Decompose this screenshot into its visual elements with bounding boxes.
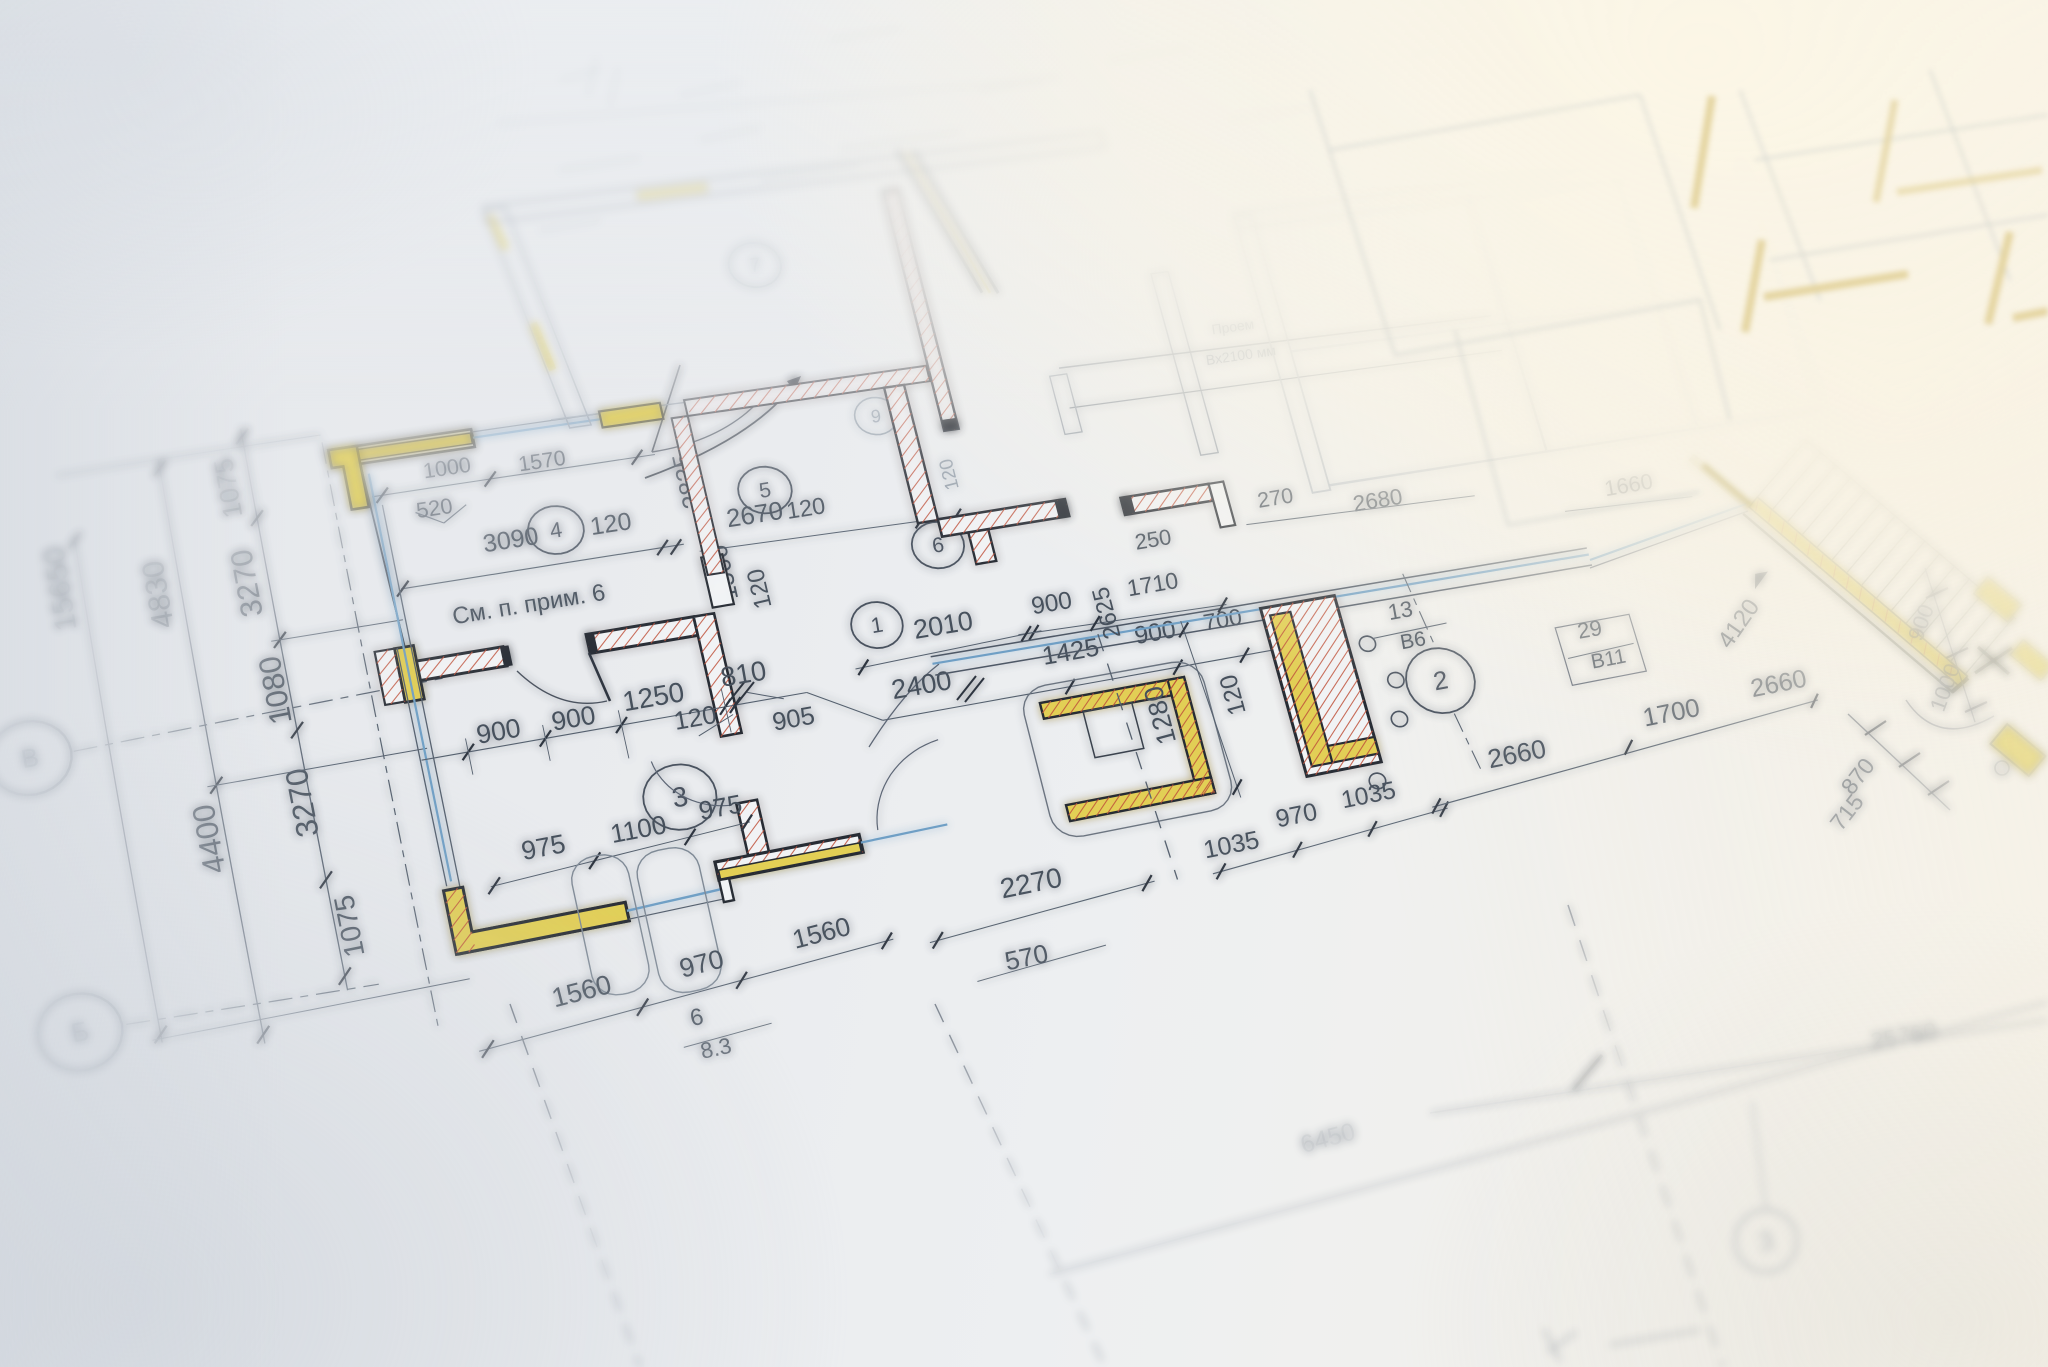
svg-text:3270: 3270 [224,547,270,620]
svg-text:29: 29 [1575,615,1604,644]
svg-text:900: 900 [549,700,598,737]
svg-text:3: 3 [670,780,691,813]
svg-text:В: В [19,742,41,775]
svg-text:570: 570 [1002,938,1051,976]
svg-text:970: 970 [676,943,727,983]
svg-text:905: 905 [770,702,817,737]
svg-text:120: 120 [742,566,777,611]
svg-text:2010: 2010 [911,605,975,645]
svg-text:4830: 4830 [135,558,181,631]
svg-text:1080: 1080 [252,653,299,727]
svg-text:250: 250 [1133,524,1173,555]
svg-text:120: 120 [588,508,633,541]
svg-text:1035: 1035 [1339,777,1398,814]
svg-text:900: 900 [1132,615,1178,650]
svg-text:См. п. прим. 6: См. п. прим. 6 [451,580,608,630]
svg-text:520: 520 [414,493,454,523]
svg-text:6450: 6450 [1297,1118,1358,1159]
svg-text:1035: 1035 [1201,826,1261,865]
svg-text:120: 120 [1215,671,1252,718]
svg-text:В6: В6 [1398,627,1427,654]
svg-text:1075: 1075 [208,456,248,520]
svg-text:7: 7 [748,254,762,277]
svg-text:120: 120 [672,701,719,736]
svg-text:2270: 2270 [997,862,1064,905]
svg-text:1660: 1660 [1602,468,1654,501]
svg-text:810: 810 [718,654,768,692]
svg-text:3270: 3270 [278,765,325,840]
svg-text:2660: 2660 [1485,733,1548,774]
svg-text:3090: 3090 [481,522,540,558]
svg-text:15650: 15650 [36,545,83,634]
svg-text:2400: 2400 [889,664,954,705]
svg-text:2680: 2680 [1351,484,1404,517]
svg-text:1710: 1710 [1125,567,1180,601]
svg-text:1: 1 [869,611,885,638]
svg-text:1100: 1100 [608,809,669,849]
svg-text:4400: 4400 [186,801,233,876]
svg-text:2660: 2660 [1748,665,1809,704]
svg-text:975: 975 [519,828,568,866]
svg-text:120: 120 [784,492,827,524]
svg-text:1000: 1000 [421,452,472,484]
svg-text:1570: 1570 [517,446,568,477]
svg-text:270: 270 [1256,483,1295,512]
svg-text:2: 2 [1431,666,1450,696]
svg-text:1075: 1075 [328,892,371,959]
svg-text:9: 9 [870,406,883,427]
svg-text:8.3: 8.3 [698,1033,734,1064]
svg-text:975: 975 [696,788,744,825]
svg-text:970: 970 [1273,798,1319,834]
svg-text:1700: 1700 [1641,694,1703,733]
svg-text:1560: 1560 [548,968,614,1013]
svg-text:4: 4 [548,517,564,544]
svg-text:120: 120 [936,456,964,492]
svg-text:25760: 25760 [1868,1018,1938,1056]
svg-text:Б: Б [68,1015,91,1049]
svg-text:3: 3 [1756,1225,1776,1257]
svg-text:900: 900 [1903,601,1939,644]
svg-text:900: 900 [1029,587,1074,620]
svg-text:2670: 2670 [724,497,785,533]
svg-text:6: 6 [688,1003,706,1031]
svg-text:715: 715 [1825,789,1869,835]
svg-text:870: 870 [1836,753,1880,799]
svg-text:13: 13 [1386,596,1415,625]
svg-text:В11: В11 [1589,645,1628,674]
svg-text:Проем: Проем [1211,316,1256,338]
svg-text:1560: 1560 [789,911,853,955]
svg-text:4120: 4120 [1712,594,1765,653]
